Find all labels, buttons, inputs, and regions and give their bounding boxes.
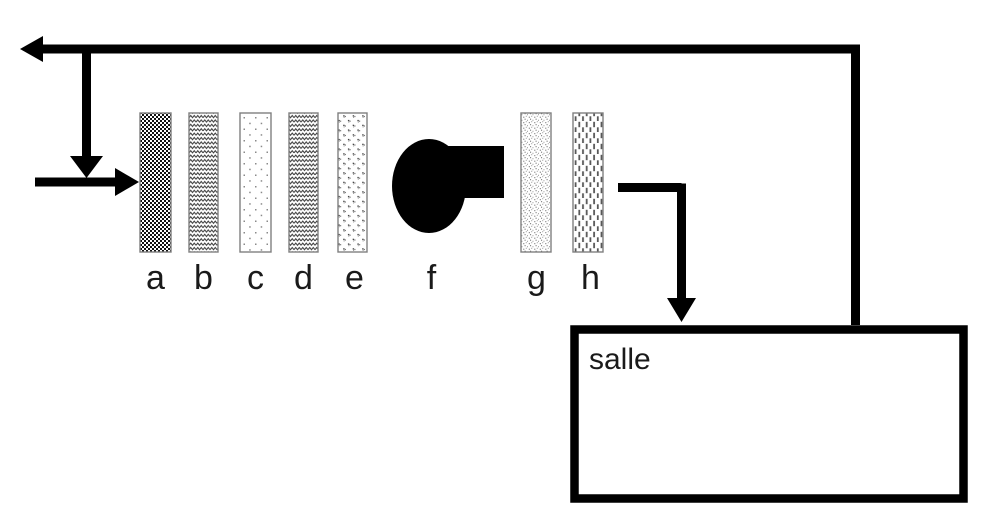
component-label-f: f [427, 259, 437, 297]
component-d [289, 113, 318, 252]
component-label-e: e [345, 259, 364, 297]
component-a [140, 113, 171, 252]
component-label-c: c [247, 259, 264, 297]
component-label-a: a [146, 259, 165, 297]
component-label-d: d [294, 259, 313, 297]
component-g [521, 113, 551, 252]
fan-scroll-body [392, 139, 466, 233]
air-handling-schematic: salle a b c d e f g h [0, 0, 1000, 529]
room-label: salle [589, 343, 651, 376]
component-e [338, 113, 367, 252]
schematic-canvas: salle a b c d e f g h [0, 0, 1000, 529]
component-label-b: b [194, 259, 213, 297]
component-c [240, 113, 271, 252]
component-h [573, 113, 603, 252]
component-label-h: h [581, 259, 600, 297]
component-b [189, 113, 218, 252]
component-label-g: g [527, 259, 546, 297]
